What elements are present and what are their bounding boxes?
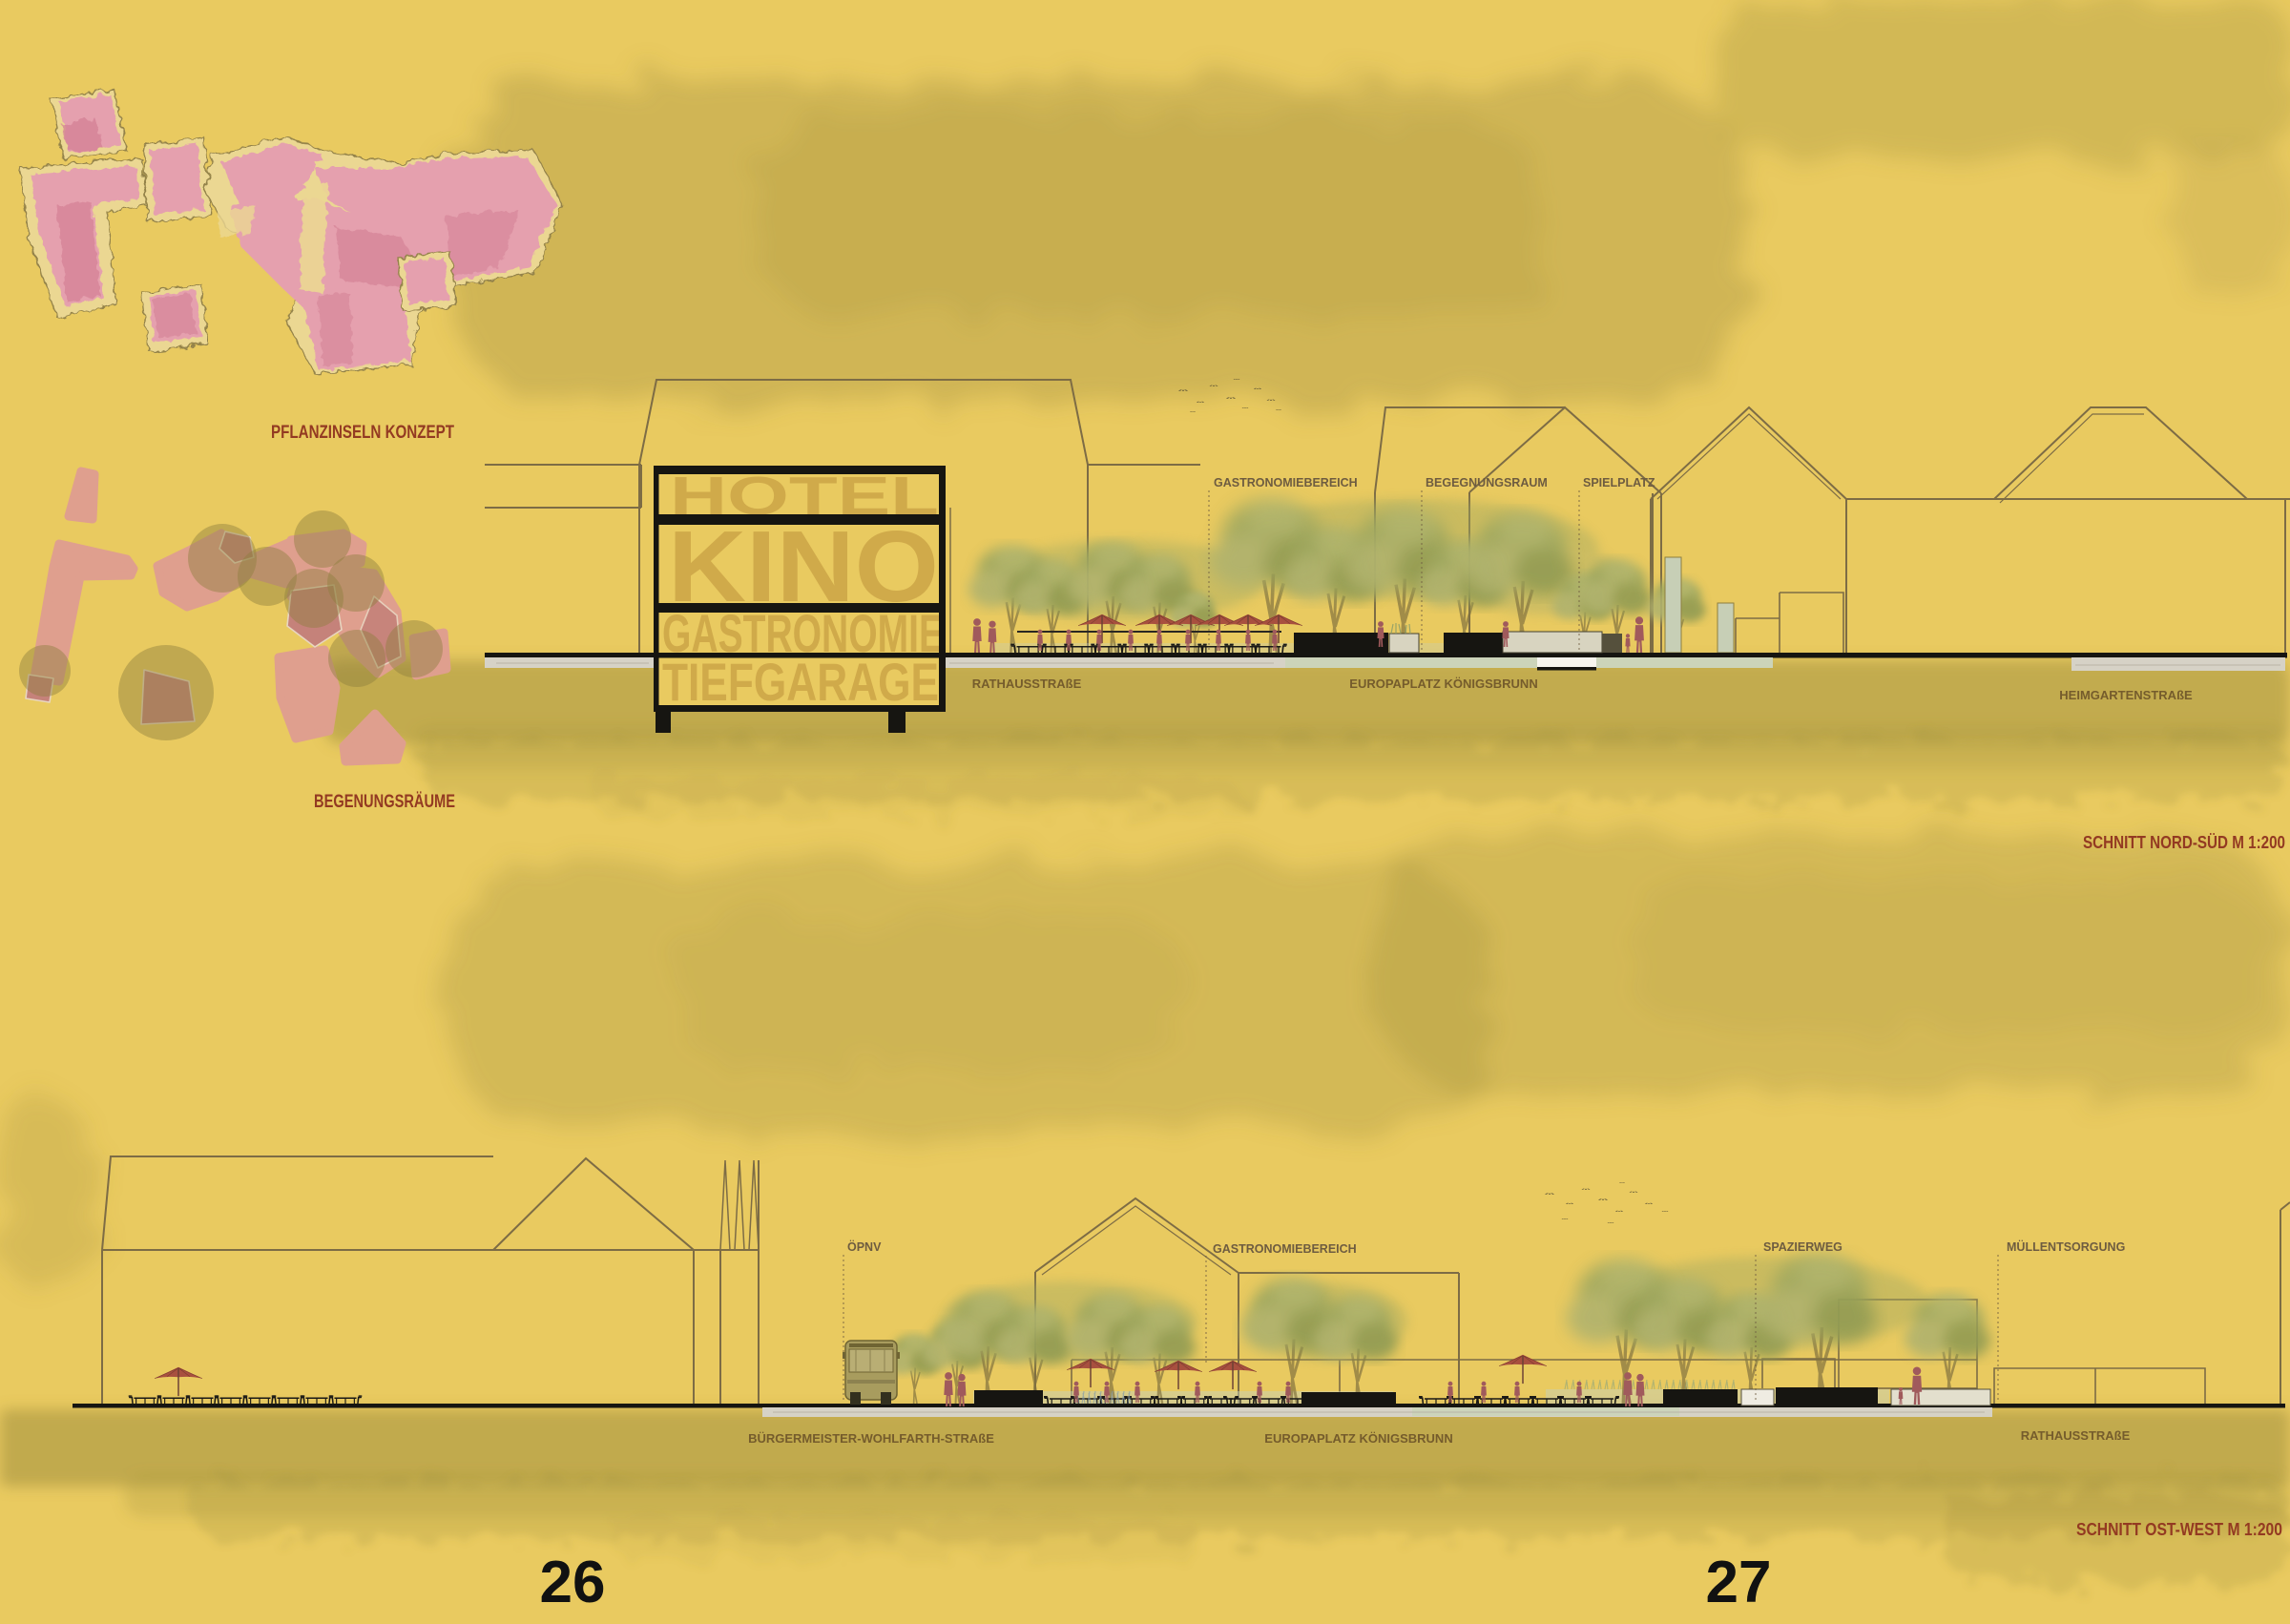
svg-text:RATHAUSSTRAßE: RATHAUSSTRAßE: [2021, 1428, 2131, 1443]
svg-text:TIEFGARAGE: TIEFGARAGE: [662, 652, 939, 712]
svg-text:GASTRONOMIEBEREICH: GASTRONOMIEBEREICH: [1213, 1242, 1357, 1256]
svg-text:BEGENUNGSRÄUME: BEGENUNGSRÄUME: [314, 792, 455, 812]
svg-text:EUROPAPLATZ KÖNIGSBRUNN: EUROPAPLATZ KÖNIGSBRUNN: [1264, 1431, 1452, 1446]
svg-text:SCHNITT OST-WEST M 1:200: SCHNITT OST-WEST M 1:200: [2076, 1519, 2282, 1539]
svg-text:SPAZIERWEG: SPAZIERWEG: [1763, 1240, 1842, 1254]
svg-text:BÜRGERMEISTER-WOHLFARTH-STRAßE: BÜRGERMEISTER-WOHLFARTH-STRAßE: [748, 1431, 994, 1446]
svg-text:BEGEGNUNGSRAUM: BEGEGNUNGSRAUM: [1426, 476, 1548, 489]
svg-text:EUROPAPLATZ KÖNIGSBRUNN: EUROPAPLATZ KÖNIGSBRUNN: [1349, 677, 1537, 691]
svg-text:SCHNITT NORD-SÜD M 1:200: SCHNITT NORD-SÜD M 1:200: [2083, 832, 2285, 852]
svg-text:27: 27: [1706, 1550, 1772, 1615]
svg-text:HEIMGARTENSTRAßE: HEIMGARTENSTRAßE: [2059, 688, 2193, 702]
svg-text:26: 26: [540, 1550, 606, 1615]
svg-text:SPIELPLATZ: SPIELPLATZ: [1583, 476, 1655, 489]
svg-text:GASTRONOMIEBEREICH: GASTRONOMIEBEREICH: [1214, 476, 1358, 489]
svg-text:RATHAUSSTRAßE: RATHAUSSTRAßE: [972, 677, 1082, 691]
svg-text:PFLANZINSELN KONZEPT: PFLANZINSELN KONZEPT: [271, 423, 454, 443]
svg-text:MÜLLENTSORGUNG: MÜLLENTSORGUNG: [2007, 1239, 2125, 1254]
svg-text:ÖPNV: ÖPNV: [847, 1239, 882, 1254]
